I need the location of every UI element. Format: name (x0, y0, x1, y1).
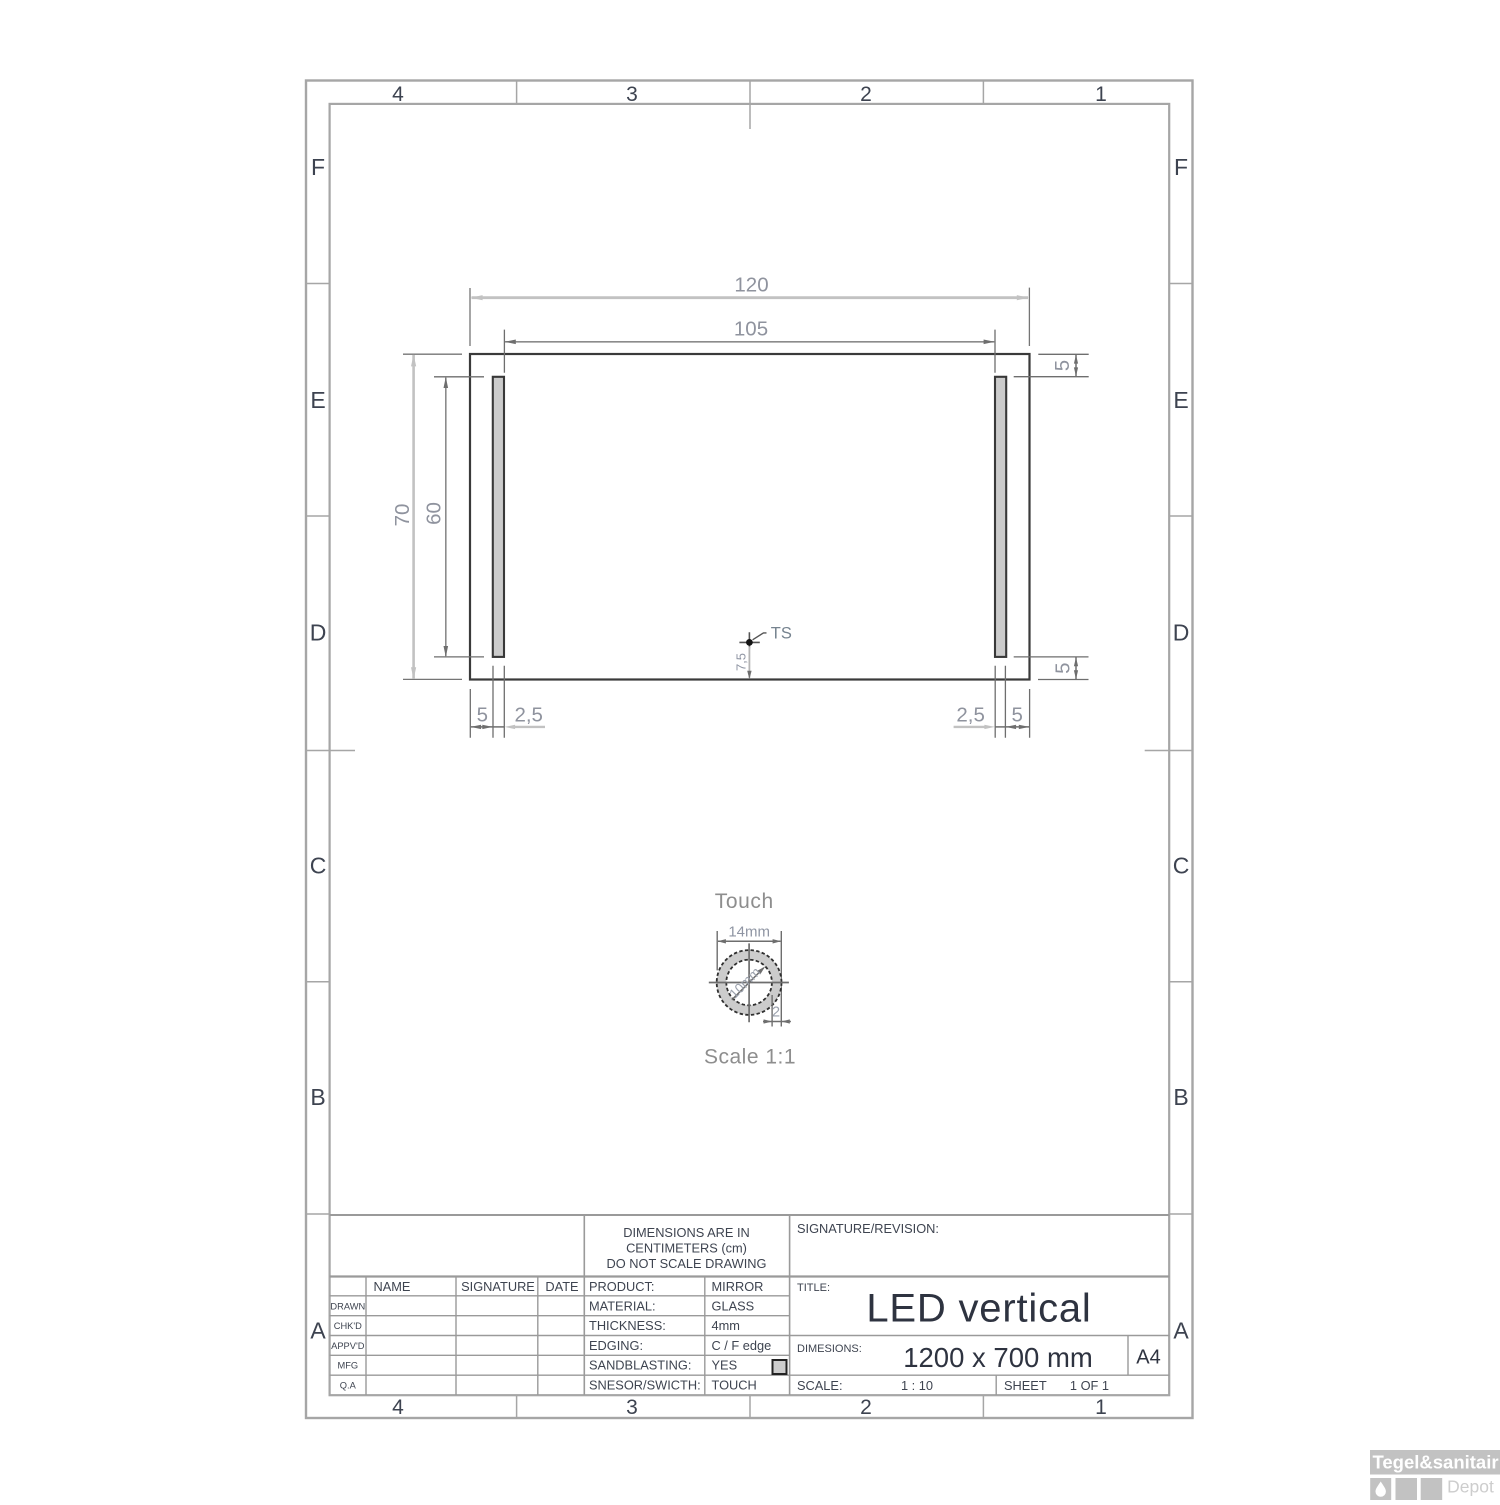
svg-text:3: 3 (626, 1396, 638, 1419)
svg-text:Q.A: Q.A (340, 1380, 357, 1390)
svg-text:LED vertical: LED vertical (866, 1287, 1091, 1331)
svg-text:C: C (1173, 853, 1190, 879)
svg-text:SIGNATURE/REVISION:: SIGNATURE/REVISION: (797, 1221, 939, 1236)
svg-text:APPV'D: APPV'D (331, 1341, 365, 1351)
svg-text:SHEET: SHEET (1004, 1378, 1047, 1393)
svg-text:2: 2 (860, 1396, 872, 1419)
svg-text:4mm: 4mm (712, 1318, 740, 1333)
svg-text:5: 5 (1011, 703, 1022, 726)
svg-text:DATE: DATE (545, 1279, 578, 1294)
svg-text:1 OF 1: 1 OF 1 (1070, 1378, 1109, 1393)
svg-text:SIGNATURE: SIGNATURE (461, 1279, 535, 1294)
svg-text:DRAWN: DRAWN (330, 1301, 365, 1311)
svg-text:A4: A4 (1136, 1347, 1160, 1369)
svg-text:PRODUCT:: PRODUCT: (589, 1279, 654, 1294)
svg-text:Touch: Touch (715, 890, 774, 913)
svg-text:4: 4 (392, 83, 404, 106)
svg-text:A: A (1173, 1318, 1189, 1344)
svg-text:7,5: 7,5 (733, 653, 748, 671)
svg-text:E: E (310, 387, 325, 413)
svg-text:1: 1 (1095, 83, 1107, 106)
svg-text:D: D (310, 620, 327, 646)
svg-text:1200 x 700 mm: 1200 x 700 mm (903, 1342, 1093, 1373)
svg-text:SNESOR/SWICTH:: SNESOR/SWICTH: (589, 1378, 701, 1393)
svg-text:TITLE:: TITLE: (797, 1282, 830, 1294)
svg-text:120: 120 (734, 274, 768, 297)
svg-text:A: A (310, 1318, 326, 1344)
svg-text:5: 5 (1051, 360, 1074, 371)
svg-text:E: E (1173, 387, 1188, 413)
svg-text:SANDBLASTING:: SANDBLASTING: (589, 1358, 691, 1373)
svg-text:5: 5 (1051, 662, 1074, 673)
svg-text:CENTIMETERS (cm): CENTIMETERS (cm) (626, 1240, 747, 1255)
svg-text:MFG: MFG (337, 1361, 358, 1371)
svg-text:EDGING:: EDGING: (589, 1338, 643, 1353)
svg-text:1 : 10: 1 : 10 (901, 1378, 933, 1393)
svg-text:14mm: 14mm (728, 924, 770, 941)
svg-text:GLASS: GLASS (712, 1299, 755, 1314)
svg-text:MIRROR: MIRROR (712, 1279, 764, 1294)
svg-text:2: 2 (772, 1005, 780, 1021)
svg-text:C / F edge: C / F edge (712, 1338, 772, 1353)
svg-text:CHK'D: CHK'D (334, 1321, 362, 1331)
svg-text:B: B (1173, 1084, 1188, 1110)
svg-text:2: 2 (860, 83, 872, 106)
svg-text:MATERIAL:: MATERIAL: (589, 1299, 656, 1314)
svg-text:TS: TS (771, 624, 792, 642)
svg-text:105: 105 (734, 317, 768, 340)
svg-text:Depot: Depot (1447, 1477, 1494, 1497)
svg-text:F: F (311, 154, 325, 180)
svg-text:SCALE:: SCALE: (797, 1378, 843, 1393)
svg-text:2,5: 2,5 (514, 703, 543, 726)
svg-text:C: C (310, 853, 327, 879)
svg-text:DIMESIONS:: DIMESIONS: (797, 1343, 862, 1355)
svg-text:DIMENSIONS ARE IN: DIMENSIONS ARE IN (623, 1225, 750, 1240)
svg-text:THICKNESS:: THICKNESS: (589, 1318, 666, 1333)
svg-text:1: 1 (1095, 1396, 1107, 1419)
svg-text:4: 4 (392, 1396, 404, 1419)
svg-text:B: B (310, 1084, 325, 1110)
svg-text:5: 5 (477, 703, 488, 726)
svg-text:F: F (1174, 154, 1188, 180)
svg-text:DO NOT SCALE DRAWING: DO NOT SCALE DRAWING (607, 1256, 767, 1271)
svg-text:YES: YES (712, 1358, 738, 1373)
svg-text:60: 60 (422, 502, 445, 525)
svg-text:Scale 1:1: Scale 1:1 (704, 1046, 796, 1069)
svg-text:TOUCH: TOUCH (712, 1378, 757, 1393)
svg-text:Tegel&sanitair: Tegel&sanitair (1372, 1452, 1498, 1473)
svg-text:3: 3 (626, 83, 638, 106)
svg-text:70: 70 (391, 504, 414, 527)
svg-text:NAME: NAME (374, 1279, 411, 1294)
svg-text:2,5: 2,5 (956, 703, 985, 726)
svg-text:D: D (1173, 620, 1190, 646)
